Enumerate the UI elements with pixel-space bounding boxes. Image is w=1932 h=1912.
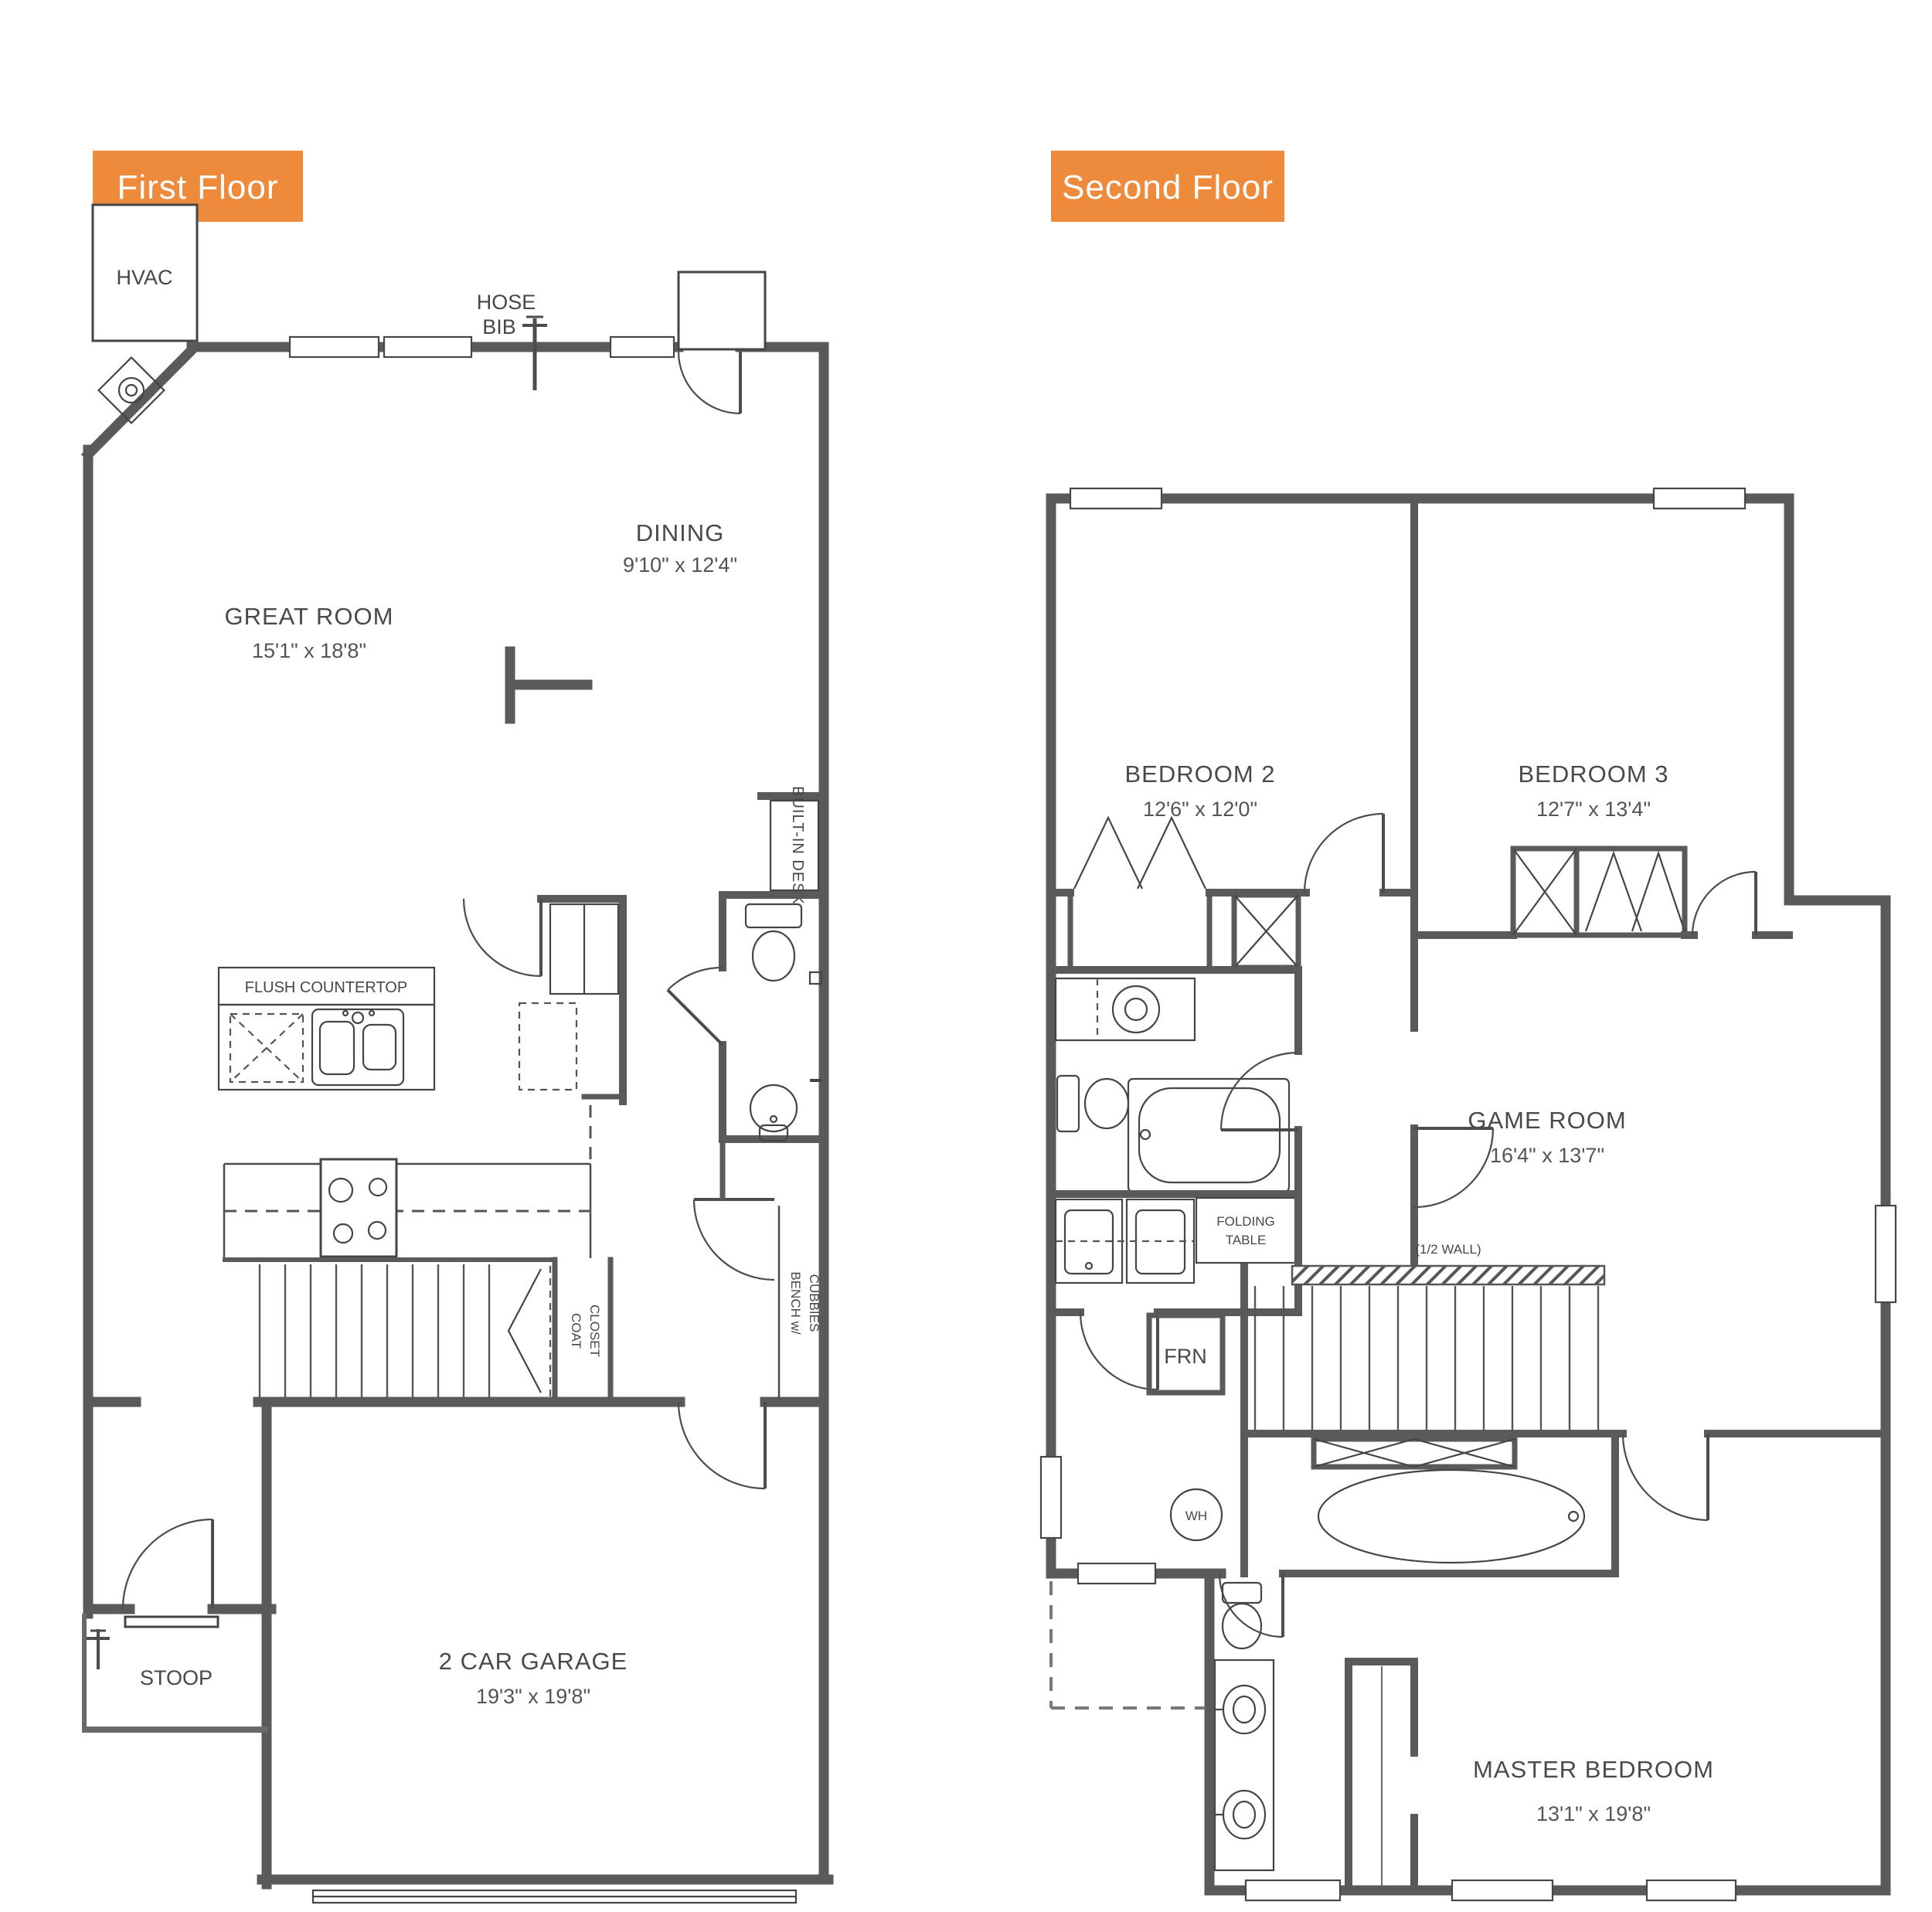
door-sill [125,1617,218,1627]
bedroom3-label: BEDROOM 3 [1518,760,1668,788]
tub-faucet-icon [1569,1512,1578,1521]
corridor-game-wall [1414,935,1493,1271]
wall-stub-t [510,652,587,719]
hose-bib-label-2: BIB [482,315,516,339]
back-door [679,272,765,413]
linen-shelves-icon [1314,1439,1515,1467]
window-icon [611,337,674,357]
bifold-door-icon [1586,853,1641,931]
second-floor-badge: Second Floor [1051,151,1284,222]
island-counter [219,1005,434,1090]
coat-closet-label-2: CLOSET [587,1305,602,1357]
coat-closet-label-1: COAT [569,1313,583,1349]
furnace-label: FRN [1164,1345,1207,1368]
great-room-label: GREAT ROOM [225,603,394,630]
bifold-door-icon [1632,853,1685,931]
door-arc [1080,1312,1158,1390]
door-arc [1623,1434,1708,1520]
pedestal-sink-icon [750,1080,821,1141]
kitchen-island: FLUSH COUNTERTOP [219,968,434,1090]
toilet-icon [1057,1076,1128,1131]
window-icon [384,337,471,357]
washer-icon [1056,1199,1122,1283]
pantry [464,899,623,1101]
window-icon [1246,1880,1340,1900]
stair-treads [260,1264,489,1397]
folding-table: FOLDING TABLE [1196,1198,1295,1263]
door-arc [679,352,740,413]
vanity-sink-icon [1056,978,1195,1040]
range-icon [321,1159,396,1257]
hall-garage-wall [88,1402,824,1488]
front-door-arc [123,1519,213,1609]
window-icon [1452,1880,1553,1900]
master-bedroom-label: MASTER BEDROOM [1473,1756,1714,1783]
folding-table-label-2: TABLE [1226,1233,1267,1247]
soaking-tub-icon [1318,1470,1584,1563]
door-arc [679,1402,765,1488]
master-closet [1349,1662,1414,1890]
door-arc [1304,814,1383,893]
stoop-hose-bib-icon [87,1629,110,1669]
hvac-label: HVAC [116,266,172,289]
bathtub-icon [1128,1079,1289,1192]
door-arc [668,968,723,990]
stoop-label: STOOP [140,1666,213,1689]
bifold-door-icon [1138,818,1206,889]
stairs-first-floor [223,1260,555,1397]
game-room-dims: 16'4" x 13'7" [1490,1144,1604,1167]
door-arc [464,899,541,976]
water-heater-label: WH [1185,1509,1207,1523]
roof-outline-dashed [1051,1581,1206,1708]
garage-dims: 19'3" x 19'8" [476,1685,590,1708]
hvac-pad: HVAC [93,205,197,341]
flush-countertop-label: FLUSH COUNTERTOP [245,979,407,996]
bifold-door-icon [1074,818,1142,889]
stair-direction-arrow [509,1269,541,1393]
bench-label-1: BENCH w/ [788,1271,803,1335]
master-bath-wc [1215,1573,1283,1870]
refrigerator-icon [519,1003,577,1090]
built-in-desk: BUILT-IN DESK [761,786,824,905]
window-icon [1647,1880,1736,1900]
door-arc [694,1199,774,1280]
bedroom2-dims: 12'6" x 12'0" [1143,798,1257,821]
stair-treads [1255,1286,1598,1430]
second-floor-plan: Second Floor BEDROOM 2 12'6" x [1041,151,1896,1900]
second-floor-badge-label: Second Floor [1062,168,1274,206]
half-wall-rail [1292,1266,1604,1284]
coat-closet: COAT CLOSET [555,1260,611,1402]
garage: 2 CAR GARAGE 19'3" x 19'8" [313,1648,796,1903]
toilet-icon [746,904,801,981]
bedroom3-closet [1414,849,1789,935]
first-floor-badge-label: First Floor [117,168,279,206]
water-heater-icon: WH [1171,1489,1222,1540]
floorplan-svg: First Floor HVAC HOSE BIB [0,0,1932,1912]
double-vanity-icon [1215,1660,1274,1870]
game-room-label: GAME ROOM [1468,1107,1626,1134]
closet-box [1513,849,1685,935]
hose-bib-label-1: HOSE [477,291,536,314]
bedroom2-closet [1051,814,1414,970]
kitchen-counter [224,1105,590,1258]
dining-dims: 9'10" x 12'4" [623,553,737,577]
half-wall-label: (1/2 WALL) [1415,1242,1481,1257]
window-icon [1078,1563,1155,1584]
bedroom2-label: BEDROOM 2 [1124,760,1275,788]
bedroom3-dims: 12'7" x 13'4" [1536,798,1651,821]
bench-cubbies: BENCH w/ CUBBIES [694,1139,821,1399]
great-room-dims: 15'1" x 18'8" [252,639,366,662]
built-in-desk-label: BUILT-IN DESK [789,786,806,905]
dishwasher-icon [230,1014,303,1082]
hall-bath [1051,970,1298,1194]
garage-label: 2 CAR GARAGE [439,1648,628,1675]
floorplan-canvas: First Floor HVAC HOSE BIB [0,0,1932,1912]
entry-and-stoop: STOOP [82,1519,268,1730]
window-icon [1041,1457,1061,1538]
master-bedroom-dims: 13'1" x 19'8" [1536,1802,1651,1825]
garage-door-icon [313,1890,796,1903]
door-leaf [668,990,723,1045]
window-icon [1654,488,1745,509]
door-arc [1414,1128,1493,1207]
toilet-icon [1223,1583,1261,1648]
window-icon [290,337,379,357]
first-floor-plan: First Floor HVAC HOSE BIB [82,151,828,1903]
dining-label: DINING [636,519,725,546]
furnace-closet: FRN [1149,1315,1223,1393]
bench-label-2: CUBBIES [807,1274,821,1332]
master-bath-tub-area [1314,1434,1615,1573]
powder-room [668,895,824,1141]
hose-bib: HOSE BIB [477,291,547,390]
door-arc [1692,872,1756,935]
folding-table-label-1: FOLDING [1216,1214,1275,1229]
door-landing [679,272,765,349]
stairs-second-floor: (1/2 WALL) [1244,1242,1886,1573]
wall-fireplace-diagonal [88,347,195,454]
window-icon [1070,488,1162,509]
window-icon [1876,1206,1896,1302]
kitchen-sink-icon [312,1009,403,1085]
linen-shelves-icon [1234,895,1298,968]
